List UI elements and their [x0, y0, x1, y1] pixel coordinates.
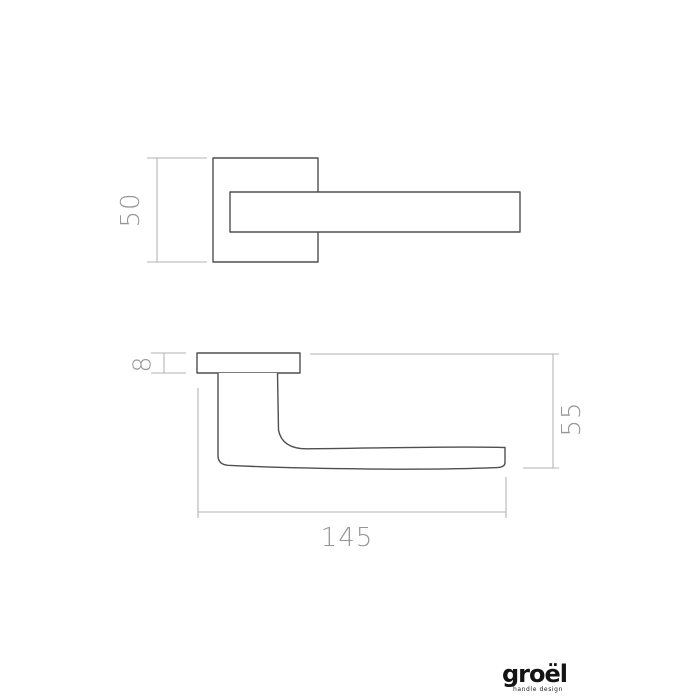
rose-side-outline	[197, 353, 300, 373]
brand-logo: groël handle design	[502, 662, 567, 693]
lever-side-outline	[218, 373, 505, 469]
drawing-canvas: 50 8 55 145	[0, 0, 700, 700]
lever-front-outline	[230, 192, 520, 232]
brand-wordmark: groël	[502, 662, 567, 686]
front-view: 50	[116, 158, 520, 262]
side-view: 8 55 145	[128, 353, 588, 553]
dim55-label: 55	[557, 401, 587, 436]
dim50-label: 50	[116, 192, 146, 227]
dim8-label: 8	[128, 356, 157, 373]
technical-drawing-svg: 50 8 55 145	[0, 0, 700, 700]
dim145-label: 145	[321, 523, 374, 553]
